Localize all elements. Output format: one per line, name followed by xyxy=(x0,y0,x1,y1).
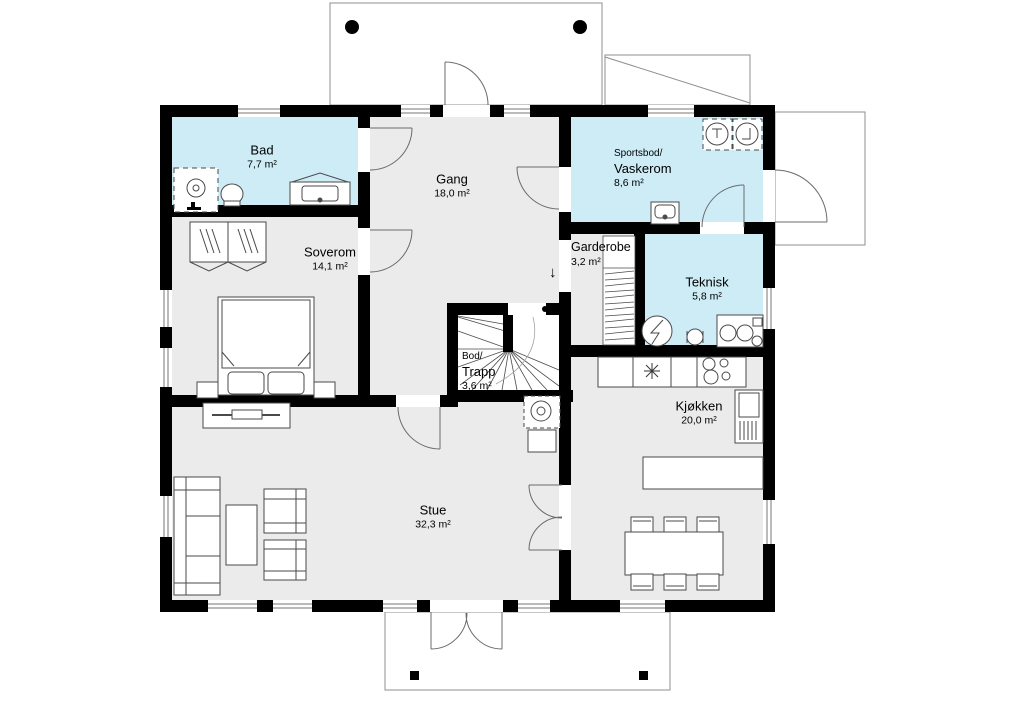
armchair xyxy=(264,489,306,533)
floor-stue xyxy=(172,400,559,600)
window xyxy=(380,600,420,612)
double-bed xyxy=(218,297,314,395)
side-platform xyxy=(775,112,865,245)
fireplace-stove xyxy=(524,396,560,452)
window xyxy=(235,105,283,117)
opening-trapp xyxy=(508,303,546,315)
window xyxy=(515,600,553,612)
dining-chair xyxy=(664,517,686,533)
window xyxy=(501,105,533,117)
opening-vaskerom-door xyxy=(559,167,571,212)
entry-porch xyxy=(330,3,602,105)
entrance-door xyxy=(445,62,488,105)
dining-chair xyxy=(697,517,719,533)
dryer xyxy=(733,119,762,150)
nightstand xyxy=(197,382,218,398)
tall-cabinet-fridge xyxy=(735,390,763,443)
kitchen-peninsula xyxy=(643,457,763,489)
window xyxy=(270,600,315,612)
stair-newel xyxy=(503,315,513,352)
window xyxy=(617,600,668,612)
sofa xyxy=(174,477,220,595)
opening-bad-door xyxy=(358,128,370,172)
dining-chair xyxy=(631,517,653,533)
porch-post xyxy=(345,20,359,34)
window xyxy=(205,600,260,612)
window xyxy=(645,105,697,117)
opening-soverom-door xyxy=(358,228,370,275)
floor-plan: Bad 7,7 m² Gang 18,0 m² Sportsbod/ Vaske… xyxy=(0,0,1018,720)
opening-entrance-door xyxy=(443,105,490,117)
dining-set xyxy=(625,517,723,590)
dining-chair xyxy=(697,574,719,590)
terrace-post xyxy=(410,671,419,680)
window xyxy=(398,105,433,117)
window xyxy=(160,345,172,390)
dining-chair xyxy=(631,574,653,590)
armchair xyxy=(264,540,306,580)
opening-exterior-door-vaskerom xyxy=(763,170,775,222)
dining-table xyxy=(625,532,723,575)
nightstand xyxy=(314,382,335,398)
utility-sink xyxy=(651,202,679,224)
pump-unit xyxy=(687,329,703,345)
terrace-post xyxy=(639,671,648,680)
opening-teknisk-door xyxy=(700,222,744,234)
coffee-table xyxy=(226,505,257,565)
washing-machine xyxy=(703,119,732,150)
wall-trapp-west xyxy=(447,303,458,402)
opening-terrace-doors xyxy=(430,600,503,612)
opening-garderobe xyxy=(559,240,571,292)
terrace xyxy=(385,612,670,690)
garderobe-fixtures xyxy=(603,236,635,345)
tv-bench xyxy=(203,403,290,428)
window xyxy=(763,497,775,547)
terrace-double-door xyxy=(431,612,502,649)
kitchen-sink-symbol xyxy=(644,363,660,379)
shower xyxy=(174,168,218,212)
porch-post xyxy=(573,20,587,34)
window xyxy=(763,285,775,332)
staircase xyxy=(458,315,559,390)
ramp-slope-line xyxy=(605,57,750,103)
water-heater xyxy=(717,315,763,347)
opening-gang-stue-door xyxy=(396,395,440,407)
window xyxy=(160,287,172,330)
floor-plan-drawing xyxy=(0,0,1018,720)
toilet xyxy=(221,184,243,206)
vaskerom-exterior-door xyxy=(775,170,827,222)
dining-chair xyxy=(664,574,686,590)
window xyxy=(160,493,172,540)
door-stop-dot xyxy=(542,306,548,312)
electrical-unit xyxy=(642,316,672,346)
